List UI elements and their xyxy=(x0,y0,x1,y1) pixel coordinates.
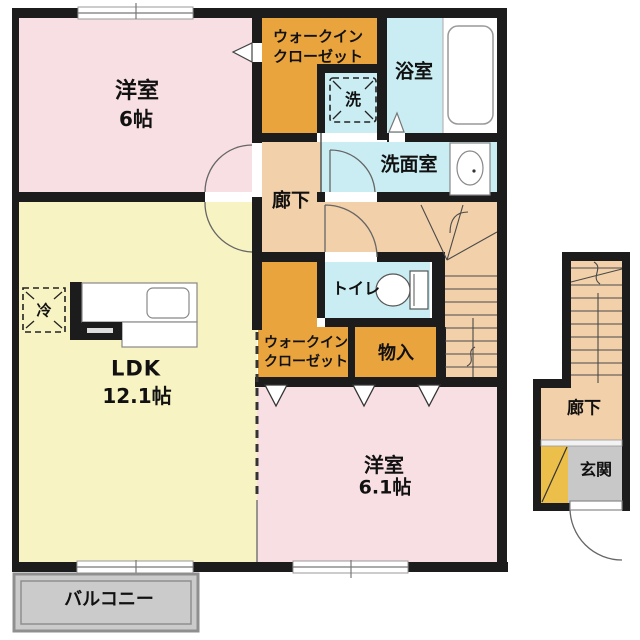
toilet-label: トイレ xyxy=(332,281,380,297)
hallway-label: 廊下 xyxy=(272,192,310,211)
ldk-floor xyxy=(19,202,257,562)
wic2-label-line1: ウォークイン xyxy=(264,336,348,350)
refrigerator-label: 冷 xyxy=(36,304,51,319)
wic2-label-line2: クローゼット xyxy=(264,355,348,369)
kitchen-sink xyxy=(147,288,189,318)
storage-label: 物入 xyxy=(378,345,414,363)
washer-label: 洗 xyxy=(345,92,361,108)
walk-in-closet1-floor-leg xyxy=(262,64,317,133)
bedroom1-size-label: 6帖 xyxy=(119,109,153,129)
floor-plan: 洋室 6帖 ウォークイン クローゼット 浴室 洗 洗面室 廊下 トイレ LDK … xyxy=(0,0,640,640)
ldk-size-label: 12.1帖 xyxy=(102,386,171,406)
washroom-sink xyxy=(450,143,490,195)
wic1-label-line1: ウォークイン xyxy=(273,30,363,45)
bedroom2-label: 洋室 xyxy=(364,455,404,475)
bedroom1-label: 洋室 xyxy=(115,81,159,103)
washroom-label: 洗面室 xyxy=(380,156,437,175)
entrance-door-leaf xyxy=(570,501,622,510)
bathroom-label: 浴室 xyxy=(395,63,433,82)
wic1-label-line2: クローゼット xyxy=(273,50,363,65)
ldk-label: LDK xyxy=(111,359,161,380)
bathtub xyxy=(443,18,493,133)
toilet-fixture xyxy=(376,271,428,309)
kitchen-counter xyxy=(70,282,197,347)
entrance-step xyxy=(541,440,622,446)
floor-plan-drawing xyxy=(0,0,640,640)
entrance-label: 玄関 xyxy=(580,462,612,478)
bedroom1-floor xyxy=(19,18,252,192)
balcony-label: バルコニー xyxy=(64,591,154,609)
bedroom2-size-label: 6.1帖 xyxy=(359,479,412,498)
entrance-hallway-label: 廊下 xyxy=(567,401,601,418)
entrance-door-arc xyxy=(570,508,622,560)
